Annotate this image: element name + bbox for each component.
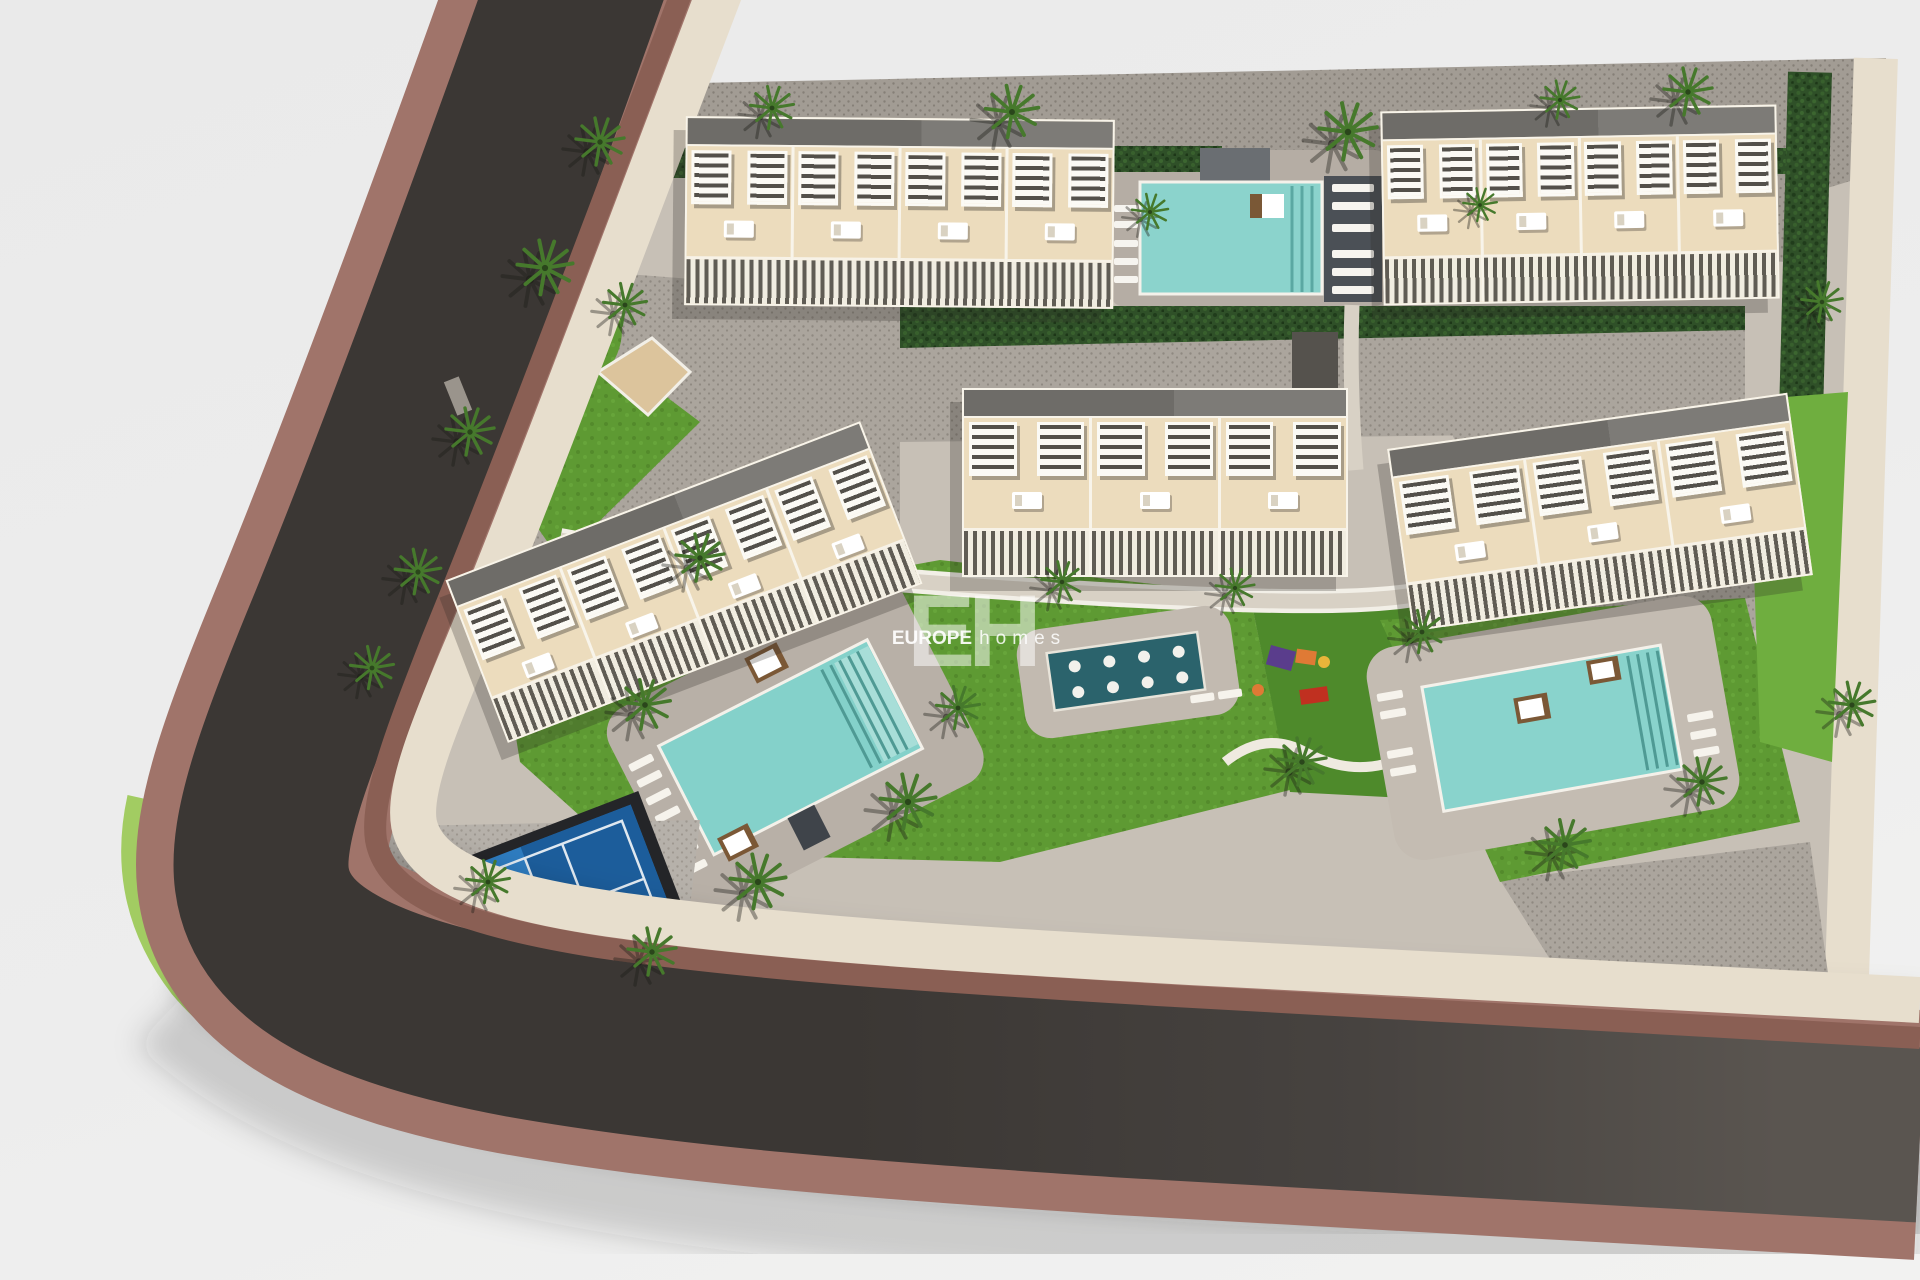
play-dot-orange [1252, 684, 1264, 696]
lawn-east-strip [1748, 392, 1848, 762]
stair-core [1292, 332, 1338, 432]
footpath-north [1351, 305, 1356, 470]
play-dot-yellow [1318, 656, 1330, 668]
site-plan-render [0, 0, 1920, 1280]
hedge-north [655, 148, 1115, 178]
daybed-base [1250, 194, 1264, 218]
north-pool-water [1140, 182, 1322, 294]
north-pool-area [1112, 146, 1385, 306]
play-slide-orange [1295, 649, 1317, 666]
hedge-north-east [1500, 148, 1790, 174]
north-pool-dark-deck [1324, 176, 1382, 302]
daybed [1262, 194, 1284, 218]
